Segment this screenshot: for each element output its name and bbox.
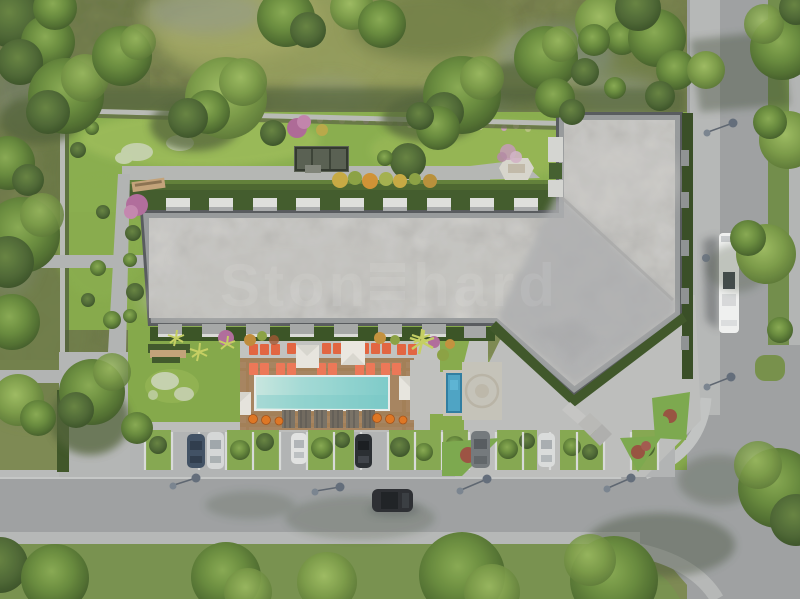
svg-text:hard: hard (413, 252, 559, 319)
svg-text:Ston: Ston (220, 252, 369, 319)
